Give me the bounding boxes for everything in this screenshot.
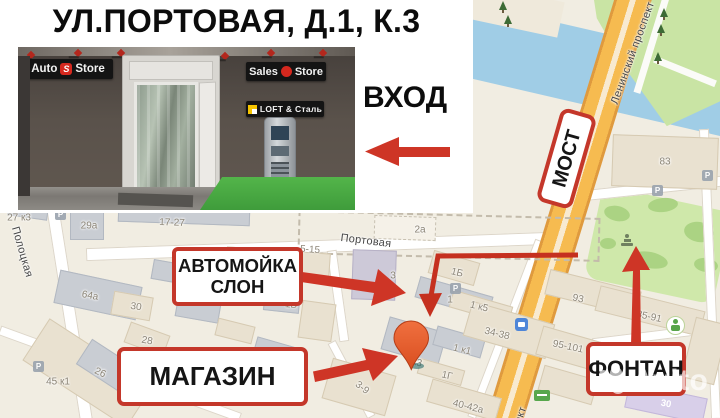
house-number: 1Г: [440, 369, 453, 382]
callout-shop: МАГАЗИН: [117, 347, 308, 406]
house-number: 17-27: [159, 217, 185, 229]
wall-left-column: [18, 56, 30, 196]
house-number: 3: [390, 271, 396, 282]
page-title: УЛ.ПОРТОВАЯ, Д.1, К.3: [0, 3, 473, 40]
tree-icon: [660, 8, 668, 17]
auto-store-sign: Auto S Store: [23, 59, 113, 79]
house-number: 29а: [81, 221, 98, 232]
tree-icon: [504, 15, 512, 24]
bus-stop-icon: [515, 318, 528, 331]
map-screenshot: PPPPP27 к329а17-272а5-1564а301В31Б11 к5к…: [0, 0, 720, 418]
green-floor: [200, 177, 355, 210]
entrance-mat: [118, 193, 193, 208]
loft-steel-sign-text: LOFT & Сталь: [260, 104, 322, 114]
callout-carwash-line1: АВТОМОЙКА: [178, 256, 297, 276]
storefront-photo: Auto S Store Sales Store LOFT & Сталь: [18, 47, 355, 210]
house-number: 93: [571, 292, 584, 305]
parking-icon: P: [652, 185, 663, 196]
transport-icon: [534, 390, 550, 401]
auto-store-sign-text-right: Store: [75, 63, 104, 75]
parking-icon: P: [33, 361, 44, 372]
watermark-text: Avito: [632, 364, 708, 398]
parking-icon: P: [702, 170, 713, 181]
loft-logo-icon: [248, 105, 257, 114]
house-number: 28: [141, 335, 154, 348]
building: [426, 379, 502, 418]
tree-icon: [657, 24, 665, 33]
street-label: Ленинский проспект: [609, 0, 657, 106]
house-number: 30: [660, 398, 672, 411]
sales-store-sign-text-left: Sales: [249, 66, 278, 78]
door-open-panel: [199, 82, 216, 197]
house-number: 1: [447, 295, 453, 306]
building: [298, 300, 337, 342]
loft-steel-sign: LOFT & Сталь: [246, 101, 324, 117]
sales-store-logo: [281, 66, 292, 77]
house-number: к3: [411, 357, 423, 370]
house-number: 30: [130, 301, 143, 313]
watermark-logo: [598, 367, 626, 395]
house-number: 2а: [414, 225, 425, 236]
callout-carwash-line2: СЛОН: [211, 277, 265, 297]
tree-icon: [654, 52, 662, 61]
house-number: 27 к3: [7, 213, 31, 224]
house-number: 45 к1: [46, 377, 70, 388]
sales-store-sign: Sales Store: [246, 62, 326, 81]
door-glass: [134, 82, 198, 200]
street-label: Полоцкая: [9, 225, 35, 279]
auto-store-sign-text-left: Auto: [31, 63, 57, 75]
fountain-icon: [620, 234, 634, 248]
parking-icon: P: [450, 283, 461, 294]
auto-store-logo: S: [60, 63, 72, 75]
house-number: 83: [659, 157, 670, 168]
watermark: Avito: [598, 364, 708, 398]
callout-shop-text: МАГАЗИН: [149, 362, 275, 391]
door-transom: [129, 61, 213, 80]
entrance-door: [122, 55, 220, 205]
building: [214, 318, 255, 345]
tree-icon: [499, 1, 507, 10]
sales-store-sign-text-right: Store: [295, 66, 323, 78]
callout-carwash: АВТОМОЙКА СЛОН: [172, 247, 303, 306]
entrance-label: ВХОД: [363, 81, 447, 115]
poi-person-icon: [666, 316, 685, 335]
